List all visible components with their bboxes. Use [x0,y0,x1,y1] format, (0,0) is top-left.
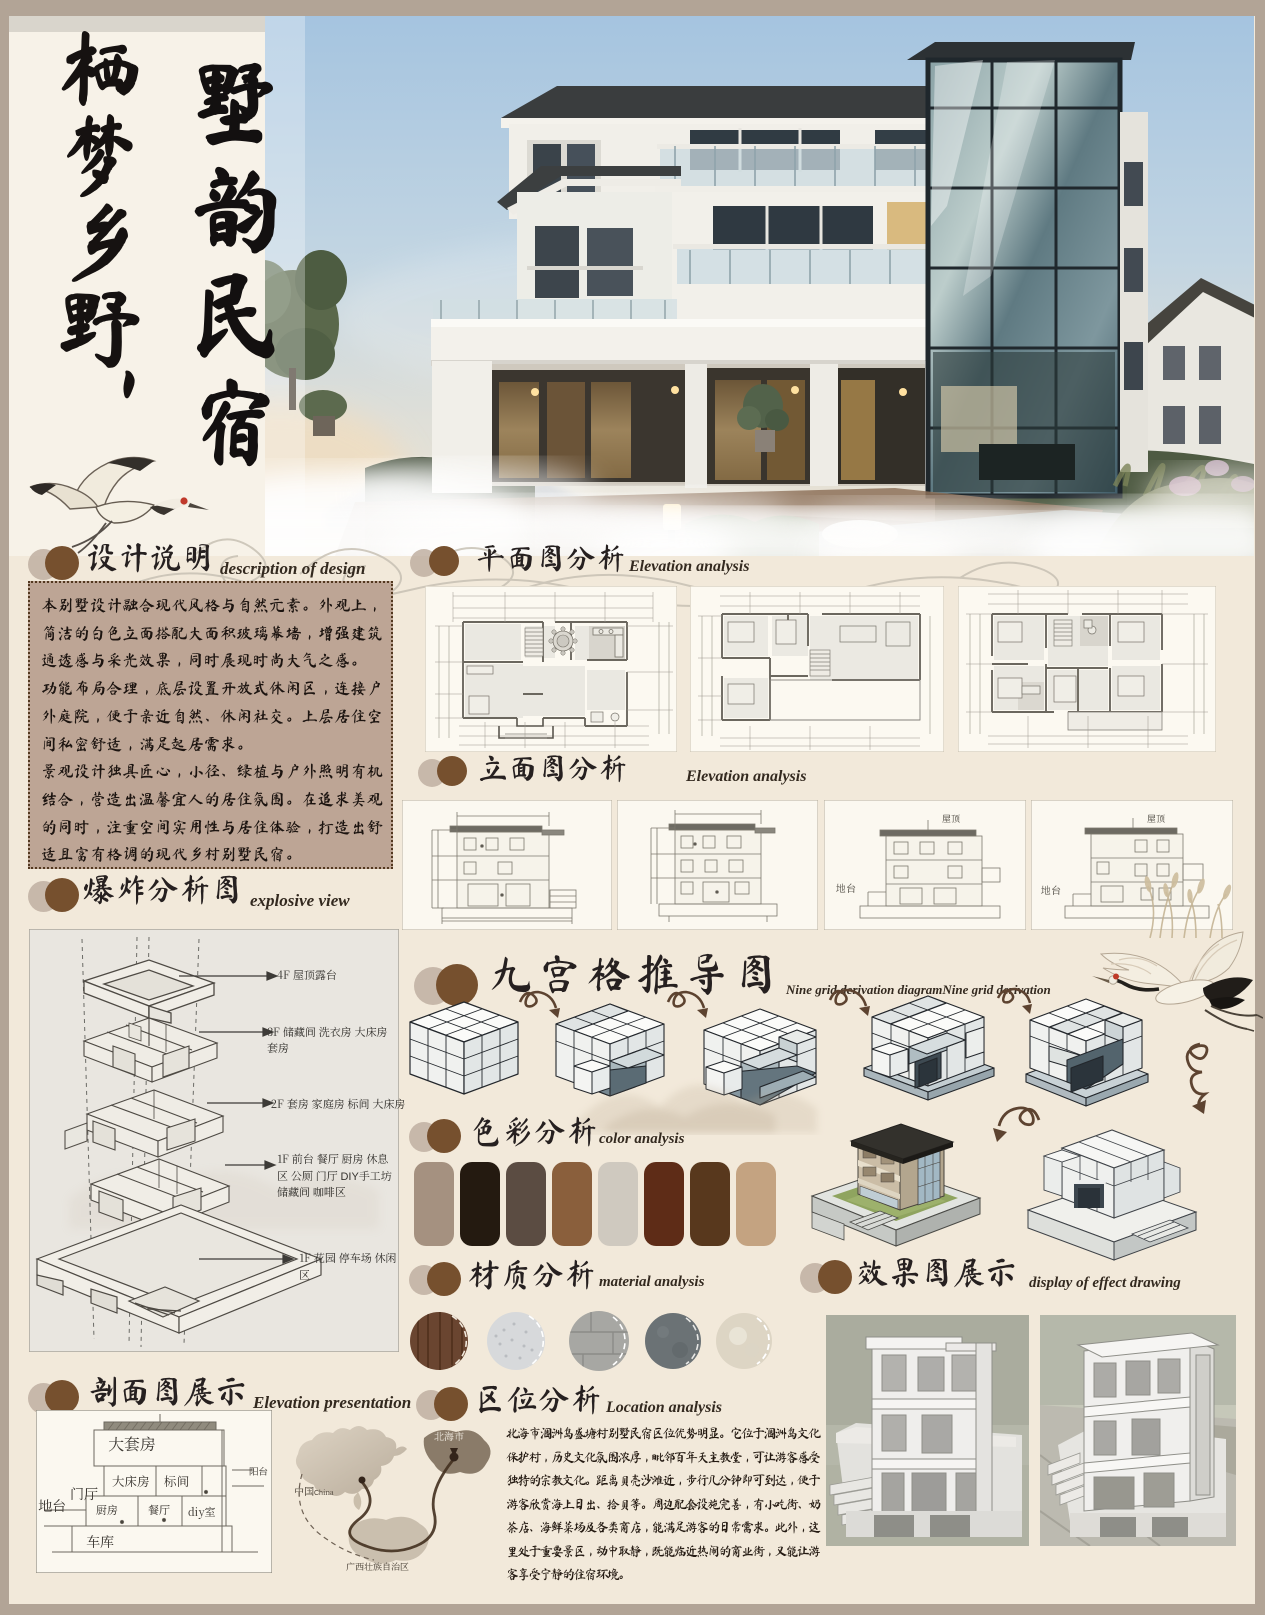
svg-text:地台: 地台 [835,880,856,895]
svg-text:地台: 地台 [1040,882,1061,897]
svg-text:屋顶: 屋顶 [1147,812,1165,825]
svg-text:屋顶: 屋顶 [942,812,960,825]
